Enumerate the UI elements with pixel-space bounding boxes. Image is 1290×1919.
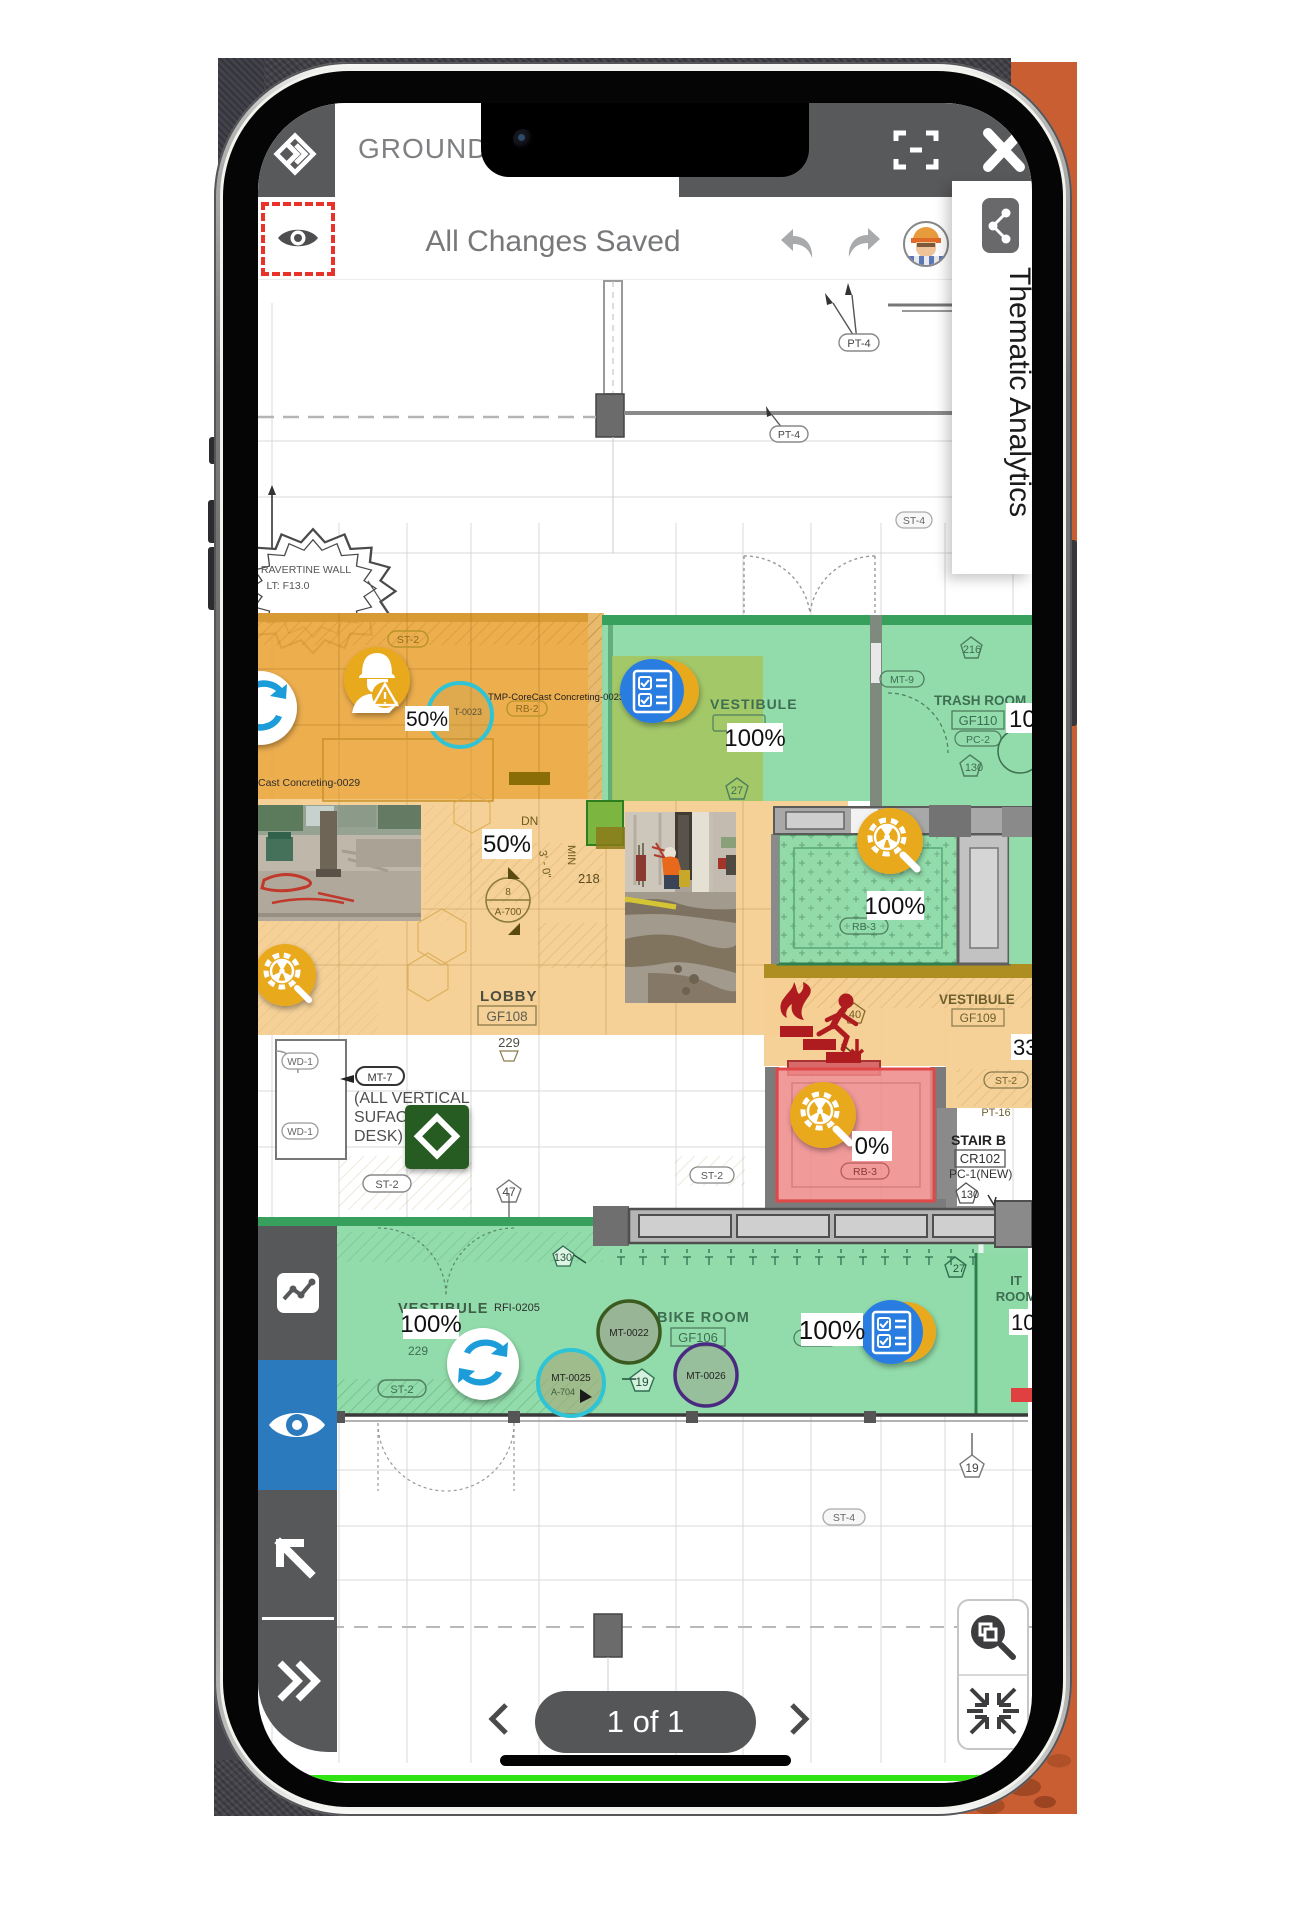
svg-text:ST-2: ST-2 — [397, 634, 419, 646]
svg-text:STAIR B: STAIR B — [951, 1132, 1006, 1148]
svg-text:LOBBY: LOBBY — [480, 988, 538, 1005]
svg-text:GF110: GF110 — [959, 713, 998, 728]
svg-text:PT-16: PT-16 — [981, 1107, 1010, 1119]
svg-text:10: 10 — [1009, 706, 1032, 733]
svg-text:ST-2: ST-2 — [701, 1170, 723, 1182]
svg-text:50%: 50% — [406, 708, 448, 731]
svg-text:130: 130 — [961, 1189, 979, 1201]
svg-text:10: 10 — [1011, 1310, 1032, 1335]
svg-text:ST-4: ST-4 — [903, 515, 925, 527]
svg-text:TMP-CoreCast Concreting-0023: TMP-CoreCast Concreting-0023 — [488, 692, 624, 703]
svg-text:PT-4: PT-4 — [778, 429, 800, 441]
svg-text:ST-2: ST-2 — [390, 1384, 413, 1396]
svg-text:ROOM: ROOM — [996, 1289, 1032, 1304]
svg-text:216: 216 — [963, 644, 981, 656]
svg-text:Cast Concreting-0029: Cast Concreting-0029 — [258, 777, 360, 789]
svg-text:19: 19 — [635, 1375, 649, 1389]
svg-text:A-700: A-700 — [495, 907, 522, 918]
svg-text:130: 130 — [554, 1252, 572, 1264]
svg-text:PC-2: PC-2 — [966, 734, 990, 746]
svg-text:WD-1: WD-1 — [287, 1127, 313, 1138]
svg-text:229: 229 — [408, 1344, 428, 1358]
svg-text:100%: 100% — [400, 1311, 461, 1338]
svg-text:WD-1: WD-1 — [287, 1057, 313, 1068]
svg-text:27: 27 — [731, 785, 743, 797]
svg-text:DESK): DESK) — [354, 1128, 403, 1145]
svg-text:100%: 100% — [799, 1315, 866, 1345]
svg-text:RB-3: RB-3 — [853, 1166, 877, 1178]
svg-text:MIN: MIN — [565, 845, 577, 865]
svg-text:229: 229 — [498, 1035, 520, 1050]
svg-text:MT-0025: MT-0025 — [551, 1373, 591, 1384]
svg-text:GF106: GF106 — [678, 1330, 718, 1345]
svg-text:IT: IT — [1010, 1273, 1022, 1288]
svg-text:VESTIBULE: VESTIBULE — [710, 696, 798, 712]
svg-text:GF108: GF108 — [486, 1009, 527, 1024]
svg-text:LT: F13.0: LT: F13.0 — [267, 580, 310, 592]
svg-text:A-704: A-704 — [551, 1387, 575, 1397]
svg-text:MT-7: MT-7 — [367, 1072, 392, 1084]
svg-text:27: 27 — [953, 1263, 965, 1275]
svg-text:RB-2: RB-2 — [516, 704, 539, 715]
svg-text:ST-2: ST-2 — [995, 1075, 1017, 1087]
svg-text:ST-4: ST-4 — [833, 1512, 855, 1524]
svg-text:RB-3: RB-3 — [852, 921, 876, 933]
svg-text:218: 218 — [578, 871, 600, 886]
svg-text:130: 130 — [965, 762, 983, 774]
svg-text:PT-4: PT-4 — [847, 338, 870, 350]
svg-text:DN: DN — [521, 814, 538, 828]
svg-text:MT-9: MT-9 — [890, 674, 914, 686]
svg-text:RFI-0205: RFI-0205 — [494, 1302, 540, 1314]
svg-text:50%: 50% — [483, 831, 531, 858]
svg-text:100%: 100% — [864, 893, 925, 920]
svg-text:MT-0026: MT-0026 — [686, 1371, 726, 1382]
svg-text:(ALL VERTICAL: (ALL VERTICAL — [354, 1090, 470, 1107]
svg-text:33: 33 — [1013, 1035, 1032, 1060]
svg-text:ST-2: ST-2 — [375, 1179, 398, 1191]
svg-text:PC-1(NEW): PC-1(NEW) — [949, 1167, 1012, 1181]
svg-text:VESTIBULE: VESTIBULE — [939, 992, 1015, 1007]
svg-text:CR102: CR102 — [960, 1151, 1000, 1166]
svg-text:8: 8 — [505, 887, 511, 898]
svg-text:MT-0022: MT-0022 — [609, 1328, 649, 1339]
svg-text:GF109: GF109 — [960, 1011, 997, 1025]
svg-text:19: 19 — [965, 1461, 979, 1475]
svg-text:BIKE ROOM: BIKE ROOM — [657, 1310, 750, 1326]
svg-text:Thematic Analytics: Thematic Analytics — [1003, 267, 1032, 517]
svg-text:100%: 100% — [724, 725, 785, 752]
svg-text:0%: 0% — [855, 1133, 890, 1160]
svg-text:RAVERTINE WALL: RAVERTINE WALL — [261, 564, 351, 576]
